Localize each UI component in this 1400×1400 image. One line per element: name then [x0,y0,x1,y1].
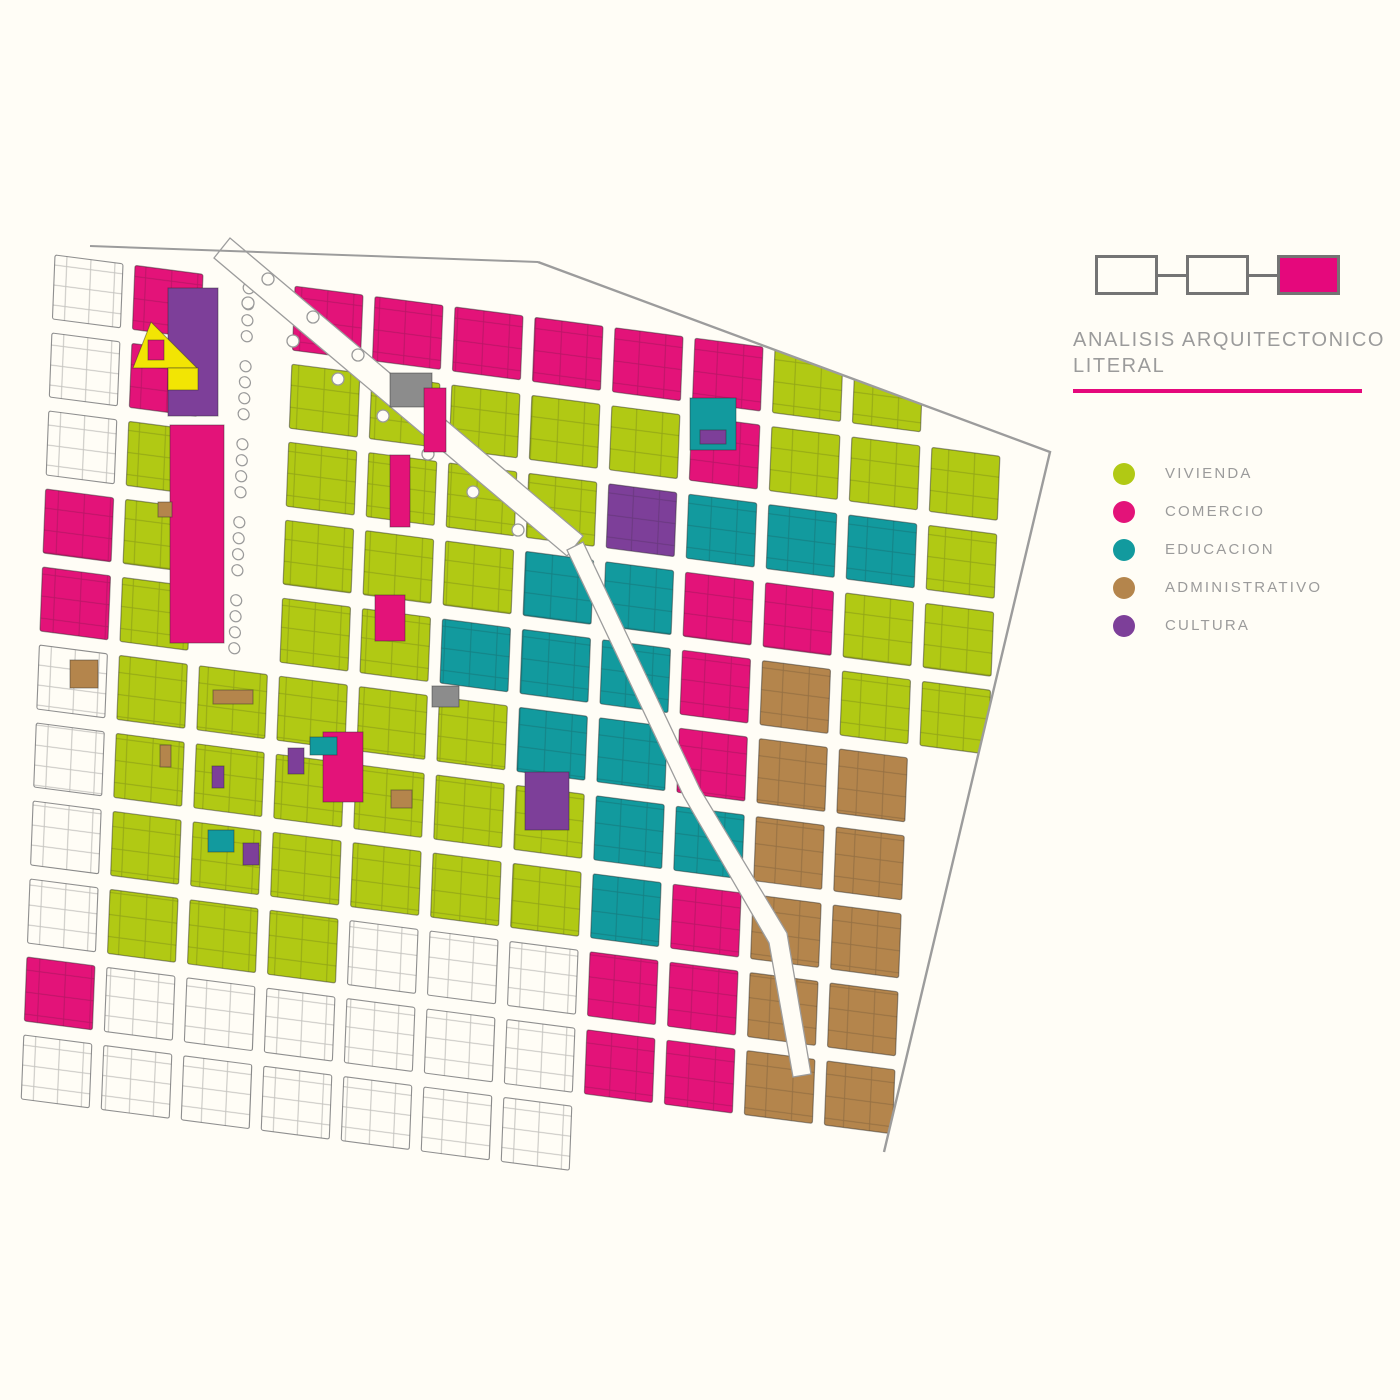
diagram-box-3-filled [1277,255,1340,295]
city-block-special-gris-equipamiento [432,686,459,707]
map-title-line2: LITERAL [1073,353,1383,379]
park-tree-icon [239,376,250,388]
map-title: ANALISIS ARQUITECTONICO LITERAL [1073,327,1383,379]
city-block-special-cultura [243,843,259,865]
park-tree-icon [240,360,251,372]
park-tree-icon [232,548,243,560]
title-underline [1073,389,1362,393]
park-tree-icon [230,610,241,622]
diagram-box-2 [1186,255,1249,295]
park-tree-icon [229,642,240,654]
page: ANALISIS ARQUITECTONICO LITERAL VIVIENDA… [0,0,1400,1400]
legend-item-educacion: EDUCACION [1073,539,1383,561]
city-block-special-administrativo [391,790,412,808]
city-block-special-cultura [525,772,569,830]
city-block-special-amarillo-destacado [168,368,198,390]
legend-dot-t-icon [1113,539,1135,561]
city-block-special-educacion [310,737,337,755]
park-tree-icon [235,470,246,482]
legend-label: CULTURA [1165,617,1250,634]
legend-item-administrativo: ADMINISTRATIVO [1073,577,1383,599]
park-tree-icon [239,392,250,404]
legend-item-comercio: COMERCIO [1073,501,1383,523]
city-block-special-comercio [148,340,164,360]
city-block-special-administrativo [160,745,171,767]
park-tree-icon [234,516,245,528]
park-tree-icon [238,408,249,420]
city-block-special-educacion [208,830,234,852]
legend-item-vivienda: VIVIENDA [1073,463,1383,485]
map-top-edge [90,246,538,262]
legend-dot-b-icon [1113,577,1135,599]
park-tree-icon [229,626,240,638]
city-block-special-comercio [390,455,410,527]
city-block-special-cultura [212,766,224,788]
avenue-tree-icon [332,373,344,385]
diagram-connector-1 [1158,274,1186,277]
park-tree-icon [230,594,241,606]
legend-item-cultura: CULTURA [1073,615,1383,637]
park-tree-icon [232,564,243,576]
land-use-map [0,0,1400,1400]
legend-label: ADMINISTRATIVO [1165,579,1322,596]
analysis-step-diagram [1095,255,1383,295]
diagram-connector-2 [1249,274,1277,277]
city-block-special-comercio [375,595,405,641]
avenue-tree-icon [377,410,389,422]
legend-dot-g-icon [1113,463,1135,485]
avenue-tree-icon [307,311,319,323]
legend-items: VIVIENDACOMERCIOEDUCACIONADMINISTRATIVOC… [1073,463,1383,637]
city-block-special-cultura [700,430,726,444]
legend-dot-c-icon [1113,615,1135,637]
city-block-special-administrativo [70,660,98,688]
legend-panel: ANALISIS ARQUITECTONICO LITERAL VIVIENDA… [1073,255,1383,637]
legend-label: VIVIENDA [1165,465,1253,482]
avenue-tree-icon [262,273,274,285]
park-tree-icon [242,314,253,326]
park-tree-icon [236,454,247,466]
park-tree-icon [235,486,246,498]
avenue-tree-icon [287,335,299,347]
park-tree-icon [241,330,252,342]
park-tree-icon [237,438,248,450]
avenue-tree-icon [512,524,524,536]
map-title-line1: ANALISIS ARQUITECTONICO [1073,327,1383,353]
avenue-tree-icon [242,297,254,309]
avenue-tree-icon [352,349,364,361]
city-block-special-comercio [170,425,224,643]
legend-label: EDUCACION [1165,541,1275,558]
avenue-tree-icon [467,486,479,498]
city-block-special-comercio [424,388,446,452]
city-block-special-cultura [288,748,304,774]
park-tree-icon [233,532,244,544]
city-block-special-administrativo [213,690,253,704]
legend-label: COMERCIO [1165,503,1265,520]
diagram-box-1 [1095,255,1158,295]
legend-dot-p-icon [1113,501,1135,523]
city-block-special-administrativo [158,502,172,517]
